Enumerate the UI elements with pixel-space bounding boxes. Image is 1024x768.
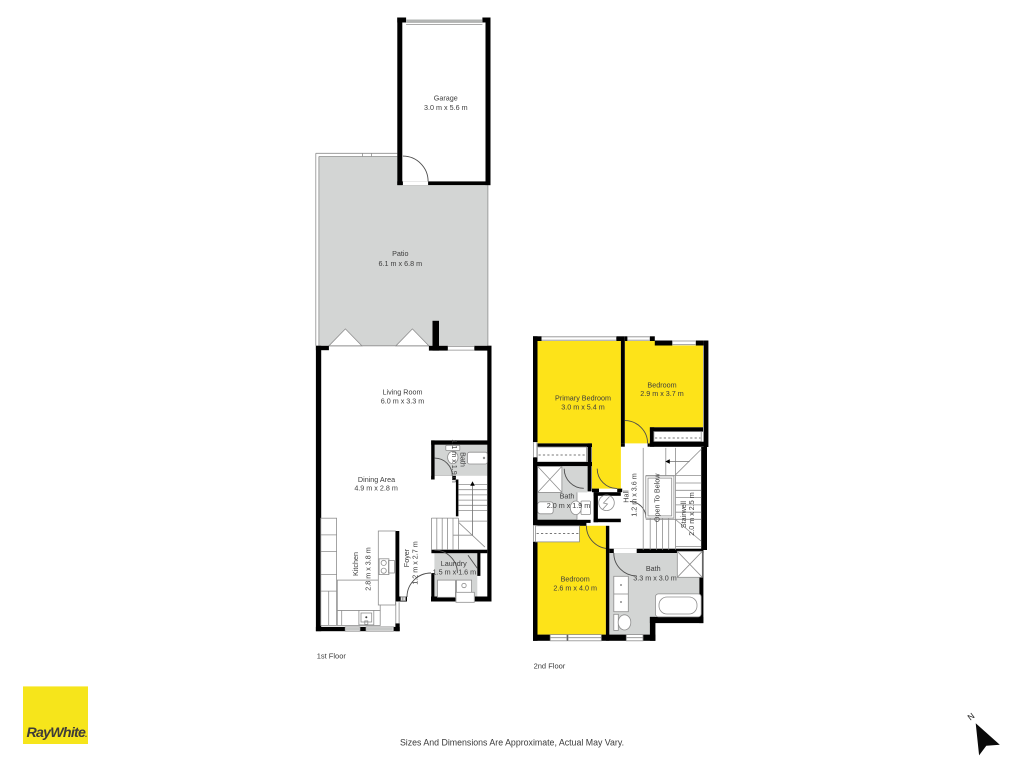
svg-text:Bath: Bath <box>560 491 575 500</box>
svg-text:Primary Bedroom: Primary Bedroom <box>555 394 611 403</box>
svg-text:N: N <box>966 711 977 723</box>
svg-text:2.6 m x 4.0 m: 2.6 m x 4.0 m <box>553 584 597 593</box>
svg-text:Bedroom: Bedroom <box>647 380 676 389</box>
svg-text:2.8 m x 3.8 m: 2.8 m x 3.8 m <box>364 547 373 591</box>
svg-text:Sizes And Dimensions Are Appro: Sizes And Dimensions Are Approximate, Ac… <box>400 737 624 747</box>
svg-text:Patio: Patio <box>392 249 408 258</box>
svg-text:3.0 m x 5.6 m: 3.0 m x 5.6 m <box>424 103 468 112</box>
svg-text:2.0 m x 1.9 m: 2.0 m x 1.9 m <box>547 501 591 510</box>
svg-text:2.0 m x 2.5 m: 2.0 m x 2.5 m <box>687 492 696 536</box>
svg-text:2nd Floor: 2nd Floor <box>534 662 566 671</box>
svg-text:Living Room: Living Room <box>383 388 423 397</box>
svg-text:Open To Below: Open To Below <box>653 473 662 522</box>
svg-text:RayWhite.: RayWhite. <box>27 725 88 741</box>
svg-text:4.9 m x 2.8 m: 4.9 m x 2.8 m <box>354 484 398 493</box>
svg-text:1.1 m x 1.9 m: 1.1 m x 1.9 m <box>450 439 459 483</box>
svg-text:Bath: Bath <box>646 564 661 573</box>
svg-text:1.5 m x 1.6 m: 1.5 m x 1.6 m <box>433 568 477 577</box>
svg-text:1st Floor: 1st Floor <box>317 652 347 661</box>
svg-text:1.2 m x 3.6 m: 1.2 m x 3.6 m <box>630 473 639 517</box>
svg-text:2.9 m x 3.7 m: 2.9 m x 3.7 m <box>640 389 684 398</box>
svg-text:1.2 m x 2.7 m: 1.2 m x 2.7 m <box>411 541 420 585</box>
svg-text:6.1 m x 6.8 m: 6.1 m x 6.8 m <box>379 259 423 268</box>
svg-text:Kitchen: Kitchen <box>351 552 360 576</box>
svg-text:Garage: Garage <box>434 94 458 103</box>
svg-text:Dining Area: Dining Area <box>358 475 395 484</box>
svg-text:6.0 m x 3.3 m: 6.0 m x 3.3 m <box>381 397 425 406</box>
svg-text:Bedroom: Bedroom <box>561 575 590 584</box>
svg-text:3.0 m x 5.4 m: 3.0 m x 5.4 m <box>561 402 605 411</box>
svg-text:3.3 m x 3.0 m: 3.3 m x 3.0 m <box>633 573 677 582</box>
svg-text:Bath: Bath <box>459 452 468 467</box>
